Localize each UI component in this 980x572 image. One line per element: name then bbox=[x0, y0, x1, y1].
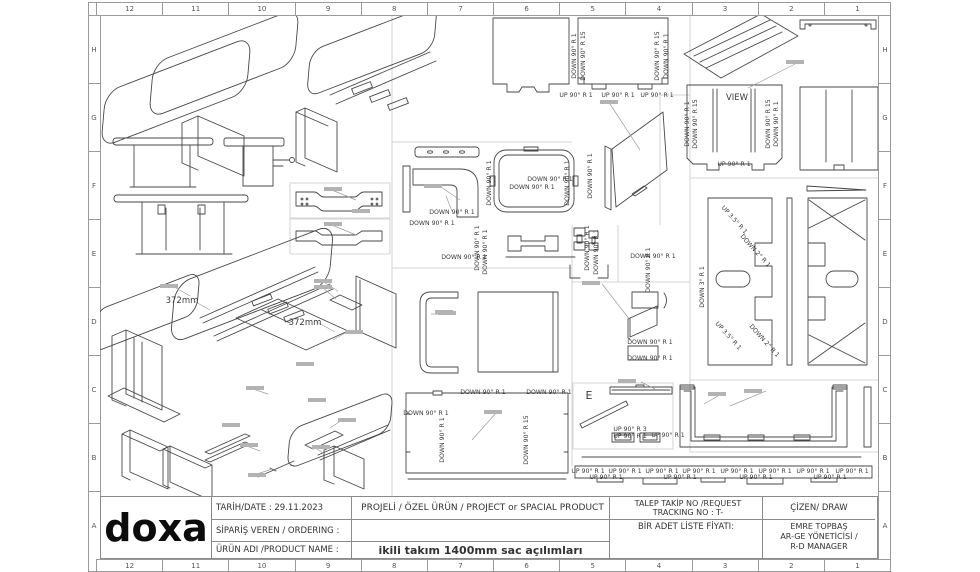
panel-boxes-iso bbox=[122, 430, 250, 496]
bend-annotation: UP 90° R 1 bbox=[663, 473, 696, 481]
dogbone-strap bbox=[506, 236, 575, 257]
bend-annotation: DOWN 90° R 1 bbox=[570, 33, 578, 79]
bend-annotation: DOWN 90° R 1 bbox=[644, 247, 652, 293]
table-front-view bbox=[113, 138, 213, 187]
frame-index: 5 bbox=[559, 560, 625, 572]
frame-index: A bbox=[879, 491, 891, 559]
bend-annotation: DOWN 90° R 1 bbox=[627, 338, 673, 346]
bend-annotation: DOWN 90° R 1 bbox=[438, 417, 446, 463]
part-callout-tag bbox=[582, 281, 600, 285]
frame-index: 3 bbox=[692, 2, 758, 15]
bend-annotation: UP 90° R 1 bbox=[651, 431, 684, 439]
bend-annotation: UP 90° R 1 bbox=[589, 473, 622, 481]
bend-annotation: E bbox=[586, 389, 593, 402]
part-callout-tag bbox=[312, 445, 330, 449]
frame-column-band-bottom: 121110987654321 bbox=[96, 559, 890, 572]
bend-annotation: DOWN 90° R 15 bbox=[764, 99, 772, 148]
frame-index: 9 bbox=[295, 560, 361, 572]
c-channel bbox=[420, 292, 458, 373]
bend-annotation: DOWN 90° R 1 bbox=[441, 253, 487, 261]
bend-annotation: DOWN 90° R 1 bbox=[630, 252, 676, 260]
frame-index: 7 bbox=[427, 2, 493, 15]
part-callout-tag bbox=[345, 330, 363, 334]
frame-index: 2 bbox=[758, 2, 824, 15]
bend-annotation: DOWN 90° R 1 bbox=[473, 225, 481, 271]
part-callout-tag bbox=[600, 100, 618, 104]
frame-index: 11 bbox=[162, 560, 228, 572]
frame-index: 6 bbox=[493, 2, 559, 15]
bend-annotation: UP 90° R 1 bbox=[601, 91, 634, 99]
bend-annotation: 372mm bbox=[166, 296, 199, 306]
part-callout-tag bbox=[484, 410, 502, 414]
frame-index: A bbox=[88, 491, 100, 559]
bend-annotation: DOWN 90° R 15 bbox=[653, 31, 661, 80]
part-callout-tag bbox=[314, 285, 332, 289]
frame-index: 9 bbox=[295, 2, 361, 15]
frame-index: 12 bbox=[96, 560, 162, 572]
bend-annotation: DOWN 90° R 1 bbox=[403, 409, 449, 417]
part-callout-tag bbox=[240, 443, 258, 447]
part-callout-tag bbox=[786, 60, 804, 64]
vertical-bar bbox=[864, 387, 871, 447]
bend-annotation: DOWN 90° R 15 bbox=[579, 31, 587, 80]
drawer-title2: R-D MANAGER bbox=[790, 542, 847, 552]
part-callout-tag bbox=[296, 362, 314, 366]
request-tracking-field: TALEP TAKİP NO /REQUEST TRACKING NO : T- bbox=[609, 497, 762, 519]
product-name-label: ÜRÜN ADI /PRODUCT NAME : bbox=[211, 541, 351, 558]
bend-annotation: VIEW bbox=[726, 93, 749, 103]
frame-index: E bbox=[88, 219, 100, 287]
project-type-field: PROJELİ / ÖZEL ÜRÜN / PROJECT or SPACIAL… bbox=[351, 497, 609, 519]
frame-index: C bbox=[88, 355, 100, 423]
bend-annotation: DOWN 2° R 1 bbox=[739, 233, 773, 269]
part-callout-tag bbox=[352, 209, 370, 213]
frame-index: 11 bbox=[162, 2, 228, 15]
bend-annotation: DOWN 90° R 15 bbox=[522, 415, 530, 464]
company-logo: doxa bbox=[101, 497, 211, 558]
part-callout-tag bbox=[160, 284, 178, 288]
frame-index: 3 bbox=[692, 560, 758, 572]
bend-annotation: DOWN 90° R 1 bbox=[586, 153, 594, 199]
frame-index: H bbox=[879, 15, 891, 83]
frame-row-band-right: HGFEDCBA bbox=[878, 15, 891, 559]
tall-notched-pattern-right bbox=[807, 186, 867, 365]
bend-annotation: UP 90° R 3 bbox=[613, 425, 646, 433]
tray-iso-view bbox=[684, 16, 798, 78]
part-callout-tag bbox=[744, 389, 762, 393]
product-name-value: ikili takım 1400mm sac açılımları bbox=[351, 541, 609, 558]
title-block: doxa TARİH/DATE : 29.11.2023 SİPARİŞ VER… bbox=[100, 496, 878, 559]
frame-index: F bbox=[879, 151, 891, 219]
table-exploded-iso-top bbox=[296, 16, 438, 172]
bend-annotation: UP 3.5° R 1 bbox=[720, 204, 750, 236]
drawer-title1: AR-GE YÖNETİCİSİ / bbox=[780, 532, 857, 542]
part-callout-tag bbox=[708, 392, 726, 396]
bend-annotation: DOWN 3° R 1 bbox=[698, 266, 706, 308]
bend-annotation: 372mm bbox=[289, 318, 322, 328]
table-side-view bbox=[224, 138, 295, 186]
drawing-sheet: 121110987654321 121110987654321 HGFEDCBA… bbox=[0, 0, 980, 572]
frame-index: B bbox=[88, 423, 100, 491]
exploded-parts-cluster bbox=[170, 224, 396, 477]
bend-annotation: DOWN 2° R 1 bbox=[748, 323, 782, 359]
wide-flat-pattern bbox=[406, 391, 568, 473]
frame-index: F bbox=[88, 151, 100, 219]
date-field: TARİH/DATE : 29.11.2023 bbox=[211, 497, 351, 519]
bend-annotation: DOWN 90° R 1 bbox=[429, 208, 475, 216]
bend-annotation: DOWN 90° R 1 bbox=[683, 101, 691, 147]
table-iso-small bbox=[287, 390, 393, 489]
part-callout-tag bbox=[248, 473, 266, 477]
part-callout-tag bbox=[308, 398, 326, 402]
bend-annotation: DOWN 90° R 15 bbox=[691, 99, 699, 148]
frame-index: 10 bbox=[228, 2, 294, 15]
part-callout-tag bbox=[246, 386, 264, 390]
unit-price-field: BİR ADET LİSTE FİYATI: bbox=[609, 519, 762, 558]
frame-index: 6 bbox=[493, 560, 559, 572]
frame-index: G bbox=[879, 83, 891, 151]
frame-index: H bbox=[88, 15, 100, 83]
frame-index: 8 bbox=[361, 560, 427, 572]
channel-bar bbox=[800, 20, 876, 29]
bend-annotation: DOWN 90° R 1 bbox=[409, 219, 455, 227]
cad-drawing-area: 372mm372mmDOWN 90° R 1DOWN 90° R 15DOWN … bbox=[100, 16, 878, 496]
frame-index: 4 bbox=[625, 560, 691, 572]
bend-annotation: DOWN 90° R 1 bbox=[772, 101, 780, 147]
frame-index: 1 bbox=[824, 560, 890, 572]
iso-sheet-panel bbox=[605, 112, 667, 210]
frame-index: 10 bbox=[228, 560, 294, 572]
bend-annotations: 372mm372mmDOWN 90° R 1DOWN 90° R 15DOWN … bbox=[166, 31, 869, 481]
part-callout-tag bbox=[338, 418, 356, 422]
part-callout-tag bbox=[324, 222, 342, 226]
bend-annotation: UP 90° R 1 bbox=[739, 473, 772, 481]
frame-index: 2 bbox=[758, 560, 824, 572]
bend-annotation: DOWN 90° R 1 bbox=[481, 229, 489, 275]
bend-annotation: DOWN 90° R 1 bbox=[583, 225, 591, 271]
bend-annotation: DOWN 90° R 1 bbox=[526, 388, 572, 396]
part-callout-tag bbox=[424, 184, 442, 188]
bend-annotation: UP 90° R 1 bbox=[640, 91, 673, 99]
part-callout-tag bbox=[324, 187, 342, 191]
bend-annotation: DOWN 90° R 1 bbox=[662, 33, 670, 79]
frame-index: C bbox=[879, 355, 891, 423]
bend-annotation: DOWN 90° R 1 bbox=[627, 354, 673, 362]
bend-annotation: UP 90° R 1 bbox=[813, 473, 846, 481]
part-callout-tag bbox=[222, 423, 240, 427]
table-front-view-open bbox=[114, 195, 248, 254]
frame-index: 1 bbox=[824, 2, 890, 15]
frame-column-band-top: 121110987654321 bbox=[96, 2, 890, 16]
frame-index: 5 bbox=[559, 2, 625, 15]
frame-index: 4 bbox=[625, 2, 691, 15]
drawer-label: ÇİZEN/ DRAW bbox=[762, 497, 875, 519]
part-callout-tag bbox=[435, 310, 453, 314]
drawer-info: EMRE TOPBAŞ AR-GE YÖNETİCİSİ / R-D MANAG… bbox=[762, 519, 875, 558]
frame-index: D bbox=[88, 287, 100, 355]
square-panel bbox=[478, 292, 558, 372]
part-callout-tag bbox=[314, 279, 332, 283]
frame-index: 7 bbox=[427, 560, 493, 572]
request-tracking-line1: TALEP TAKİP NO /REQUEST bbox=[635, 499, 742, 508]
bend-annotation: DOWN 90° R 1 bbox=[509, 183, 555, 191]
request-tracking-line2: TRACKING NO : T- bbox=[653, 508, 723, 517]
frame-index: 12 bbox=[96, 2, 162, 15]
strap-flat-patterns bbox=[296, 192, 382, 245]
frame-index: D bbox=[879, 287, 891, 355]
thin-bar bbox=[403, 166, 410, 212]
frame-index: 8 bbox=[361, 2, 427, 15]
frame-index: E bbox=[879, 219, 891, 287]
bend-annotation: DOWN 90° R 1 bbox=[592, 229, 600, 275]
bend-annotation: DOWN 90° R 1 bbox=[527, 175, 573, 183]
table-assembled-iso-view bbox=[101, 16, 299, 176]
ordering-field: SİPARİŞ VEREN / ORDERING : bbox=[211, 519, 351, 541]
thin-strip bbox=[787, 198, 792, 365]
bend-annotation: UP 3.5° R 1 bbox=[714, 320, 744, 352]
bend-annotation: UP 90° R 1 bbox=[559, 91, 592, 99]
flat-pattern-left bbox=[493, 18, 569, 92]
flat-pattern-blank bbox=[800, 87, 878, 170]
bar-with-holes bbox=[415, 147, 479, 157]
bend-annotation: DOWN 90° R 1 bbox=[460, 388, 506, 396]
frame-index: G bbox=[88, 83, 100, 151]
drawer-name: EMRE TOPBAŞ bbox=[790, 522, 847, 532]
u-frame-flat bbox=[680, 385, 847, 447]
bend-annotation: UP 90° R 1 bbox=[717, 160, 750, 168]
frame-index: B bbox=[879, 423, 891, 491]
bend-annotation: UP 90° R 1 bbox=[613, 432, 646, 440]
empty-cell bbox=[351, 519, 609, 541]
part-callout-tag bbox=[618, 379, 636, 383]
bend-annotation: DOWN 90° R 1 bbox=[485, 160, 493, 206]
